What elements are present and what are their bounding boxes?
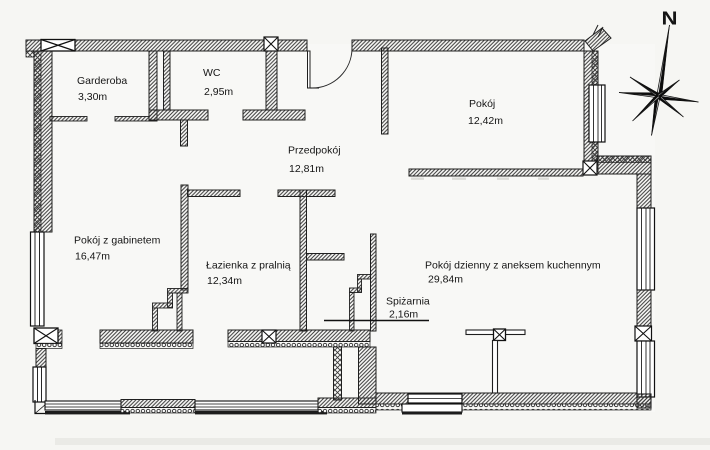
svg-text:Spiżarnia: Spiżarnia bbox=[386, 296, 430, 308]
svg-text:Pokój: Pokój bbox=[469, 98, 495, 110]
svg-text:29,84m: 29,84m bbox=[428, 274, 463, 286]
svg-text:16,47m: 16,47m bbox=[75, 251, 110, 263]
svg-text:Przedpokój: Przedpokój bbox=[288, 145, 341, 157]
svg-text:Łazienka z pralnią: Łazienka z pralnią bbox=[206, 260, 291, 272]
svg-text:2,95m: 2,95m bbox=[204, 86, 233, 98]
svg-text:WC: WC bbox=[203, 67, 221, 79]
svg-text:2,16m: 2,16m bbox=[389, 309, 418, 321]
svg-text:3,30m: 3,30m bbox=[78, 91, 107, 103]
svg-text:Garderoba: Garderoba bbox=[77, 75, 127, 87]
svg-text:Pokój dzienny z aneksem kuchen: Pokój dzienny z aneksem kuchennym bbox=[425, 260, 601, 272]
svg-text:12,42m: 12,42m bbox=[468, 115, 503, 127]
svg-text:12,81m: 12,81m bbox=[289, 163, 324, 175]
svg-text:Pokój z gabinetem: Pokój z gabinetem bbox=[74, 235, 161, 247]
svg-text:12,34m: 12,34m bbox=[207, 275, 242, 287]
